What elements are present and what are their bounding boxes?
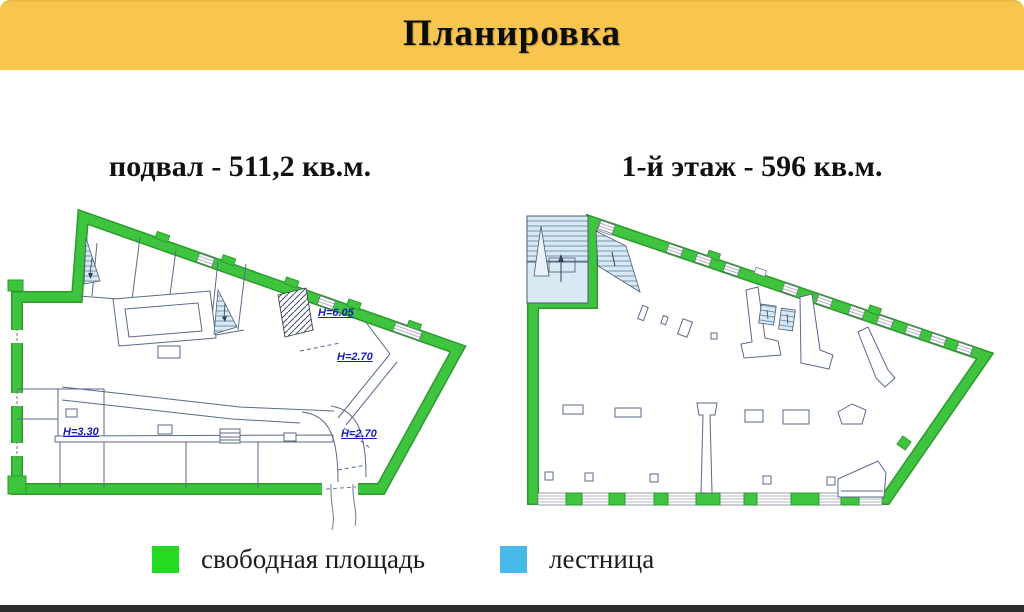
- first-floor-main-stairs-icon: [527, 216, 588, 303]
- legend-item-free-area: свободная площадь: [152, 544, 425, 575]
- first-floor-bottom-windows: [538, 493, 882, 505]
- free-area-swatch: [152, 546, 179, 573]
- legend: свободная площадь лестница: [0, 544, 1024, 578]
- stairs-label: лестница: [549, 544, 654, 575]
- height-label-4: H=2.70: [341, 428, 377, 440]
- floorplans-drawing: [0, 0, 1024, 612]
- legend-item-stairs: лестница: [500, 544, 654, 575]
- slide: Планировка подвал - 511,2 кв.м. 1-й этаж…: [0, 0, 1024, 612]
- free-area-label: свободная площадь: [201, 544, 425, 575]
- basement-exit-corridor: [322, 482, 358, 530]
- basement-floorplan: [8, 217, 458, 530]
- height-label-3: H=3.30: [63, 426, 99, 438]
- first-floor-floorplan: [527, 214, 985, 505]
- height-label-1: H=6.05: [318, 307, 354, 319]
- stairs-swatch: [500, 546, 527, 573]
- height-label-2: H=2.70: [337, 351, 373, 363]
- screenshot-bottom-edge: [0, 605, 1024, 612]
